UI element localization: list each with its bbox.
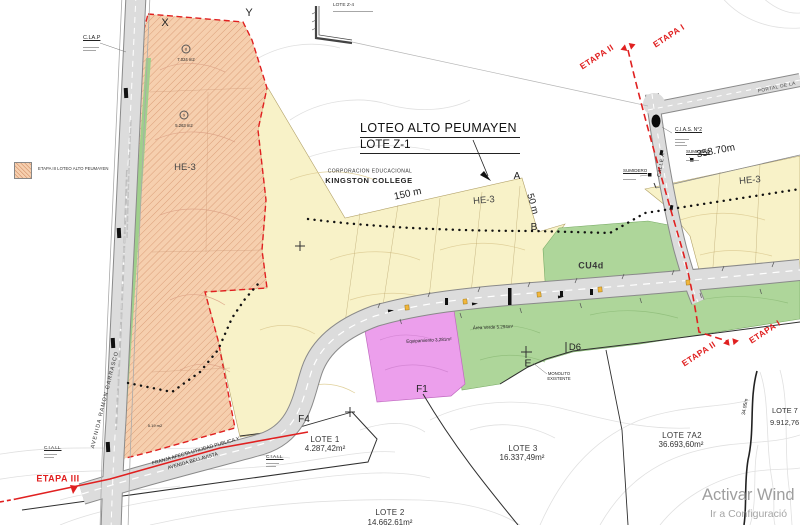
windows-activation-watermark-line2: Ir a Configuració <box>710 508 787 520</box>
lot-2-name: LOTE 2 <box>375 509 404 517</box>
marker-b: B <box>531 223 538 234</box>
lot-7a2-area: 36.693,60m² <box>659 441 704 449</box>
annotation-clap-subtext2 <box>83 50 96 51</box>
lot-7-name: LOTE 7 <box>772 407 798 415</box>
annotation-lote-z4: LOTE Z-4 <box>333 3 354 8</box>
annotation-cias-sub2 <box>675 142 685 143</box>
annotation-ciall-1-sub1 <box>44 454 57 455</box>
marker-e: E <box>524 358 531 369</box>
annotation-sumidero-2: SUMIDERO <box>623 169 647 174</box>
marker-d6: D6 <box>569 343 581 353</box>
marker-x: X <box>161 18 168 30</box>
site-plan: LOTEO ALTO PEUMAYEN LOTE Z-1 CORPORACION… <box>0 0 800 525</box>
annotation-ciall-2-sub1 <box>266 463 279 464</box>
parcel-area-5: 5.19 m2 <box>148 424 162 428</box>
zone-label-he3-center: HE-3 <box>473 195 495 207</box>
lot-3-area: 16.337,49m² <box>500 454 545 462</box>
lot-2-area: 14.662,61m² <box>368 519 413 525</box>
plan-title-line2: LOTE Z-1 <box>360 138 520 154</box>
marker-f4: F4 <box>298 415 310 426</box>
parcel-number-8: 8 <box>182 45 191 54</box>
annotation-clap: C.LA.P <box>83 36 100 42</box>
marker-y: Y <box>245 8 252 20</box>
annotation-sumidero-1-sub <box>686 160 699 161</box>
annotation-cias-sub1 <box>675 139 689 140</box>
legend-label: ETAPA III LOTEO ALTO PEUMAYEN <box>38 167 109 172</box>
stage-label-etapa3: ETAPA III <box>36 474 79 483</box>
windows-activation-watermark-line1: Activar Wind <box>702 486 795 505</box>
annotation-sumidero-1: SUMIDERO <box>686 150 710 155</box>
annotation-ciall-2: C.I.A.LL. <box>266 455 284 460</box>
annotation-ciall-1: C.I.A.LL. <box>44 446 62 451</box>
annotation-monolito-line2: EXISTENTE <box>547 377 570 381</box>
annotation-cias-sub3 <box>675 145 687 146</box>
parcel-number-9: 9 <box>180 111 189 120</box>
parcel-area-9: 5.263 m2 <box>175 124 192 128</box>
annotation-ciall-1-sub2 <box>44 457 54 458</box>
lot-1-area: 4.287,42m² <box>305 445 345 453</box>
landowner-line2: KINGSTON COLLEGE <box>325 177 412 185</box>
plan-title-line1: LOTEO ALTO PEUMAYEN <box>360 121 520 138</box>
zone-label-he3-right: HE-3 <box>739 175 761 187</box>
landowner-line1: CORPORACION EDUCACIONAL <box>328 169 413 174</box>
legend-swatch-etapa3 <box>14 162 32 179</box>
lot-7-area: 9.912,76 <box>770 419 799 427</box>
zone-label-he3-left: HE-3 <box>174 163 196 173</box>
annotation-ciall-2-sub2 <box>266 466 276 467</box>
annotation-clap-subtext <box>83 47 99 48</box>
zone-label-cu4d: CU4d <box>578 261 604 270</box>
marker-f1: F1 <box>416 385 428 396</box>
plan-title-block: LOTEO ALTO PEUMAYEN LOTE Z-1 <box>360 121 520 154</box>
annotation-cias: C.I.A.S. N°2 <box>675 128 702 133</box>
annotation-lote-z4-sub <box>333 11 373 12</box>
parcel-area-8: 7.024 m2 <box>177 58 194 62</box>
marker-a: A <box>514 172 521 183</box>
annotation-sumidero-2-sub <box>623 179 636 180</box>
